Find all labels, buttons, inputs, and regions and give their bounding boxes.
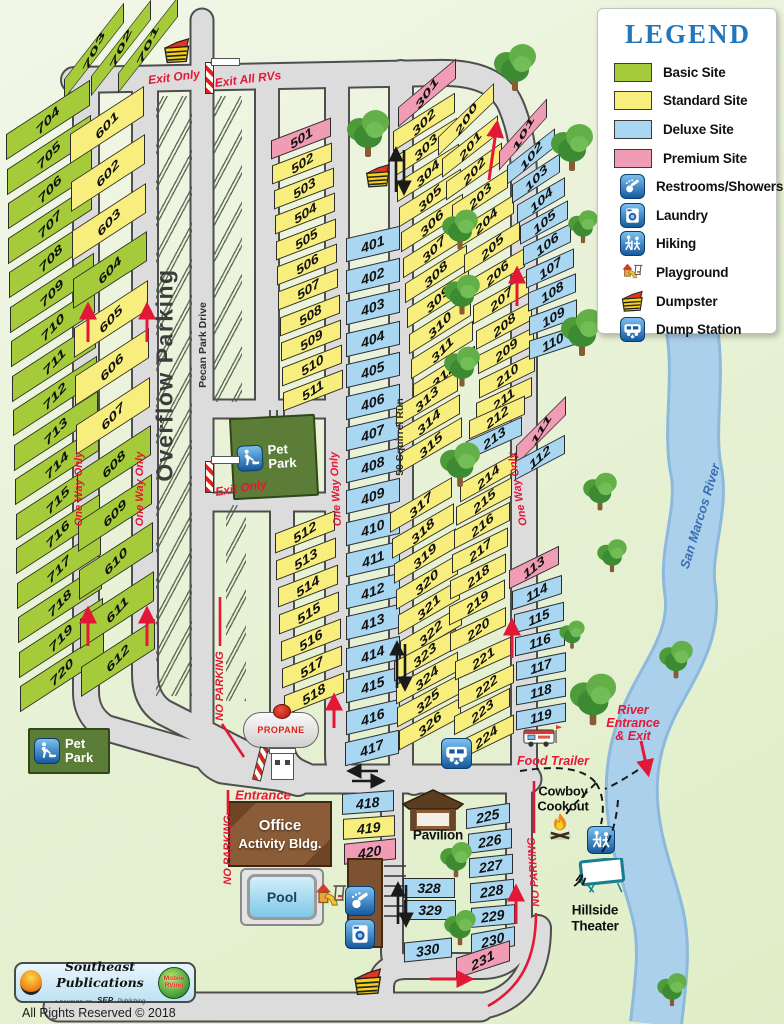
label-food-trailer: Food Trailer	[517, 754, 589, 768]
legend-label: Deluxe Site	[663, 122, 734, 137]
site-number: 403	[360, 295, 386, 319]
exit-gate-post	[205, 461, 214, 493]
site-number: 413	[360, 610, 386, 634]
label-cowboy: Cowboy	[538, 784, 587, 799]
legend-row-dump-station: Dump Station	[614, 315, 776, 344]
office-label: Office	[230, 817, 330, 834]
legend-row-playground: Playground	[614, 258, 776, 287]
exit-gate-post	[205, 62, 214, 94]
site-number: 417	[359, 736, 385, 760]
site-number: 226	[478, 831, 503, 852]
site-number: 418	[356, 793, 380, 812]
dumpster-icon	[620, 289, 645, 314]
label-one-way-only: One Way Only	[134, 452, 146, 526]
dog-walk-icon	[236, 445, 263, 472]
exit-gate-arm	[211, 456, 240, 464]
legend-row-standard-site: Standard Site	[614, 87, 776, 116]
site-number: 412	[360, 579, 386, 603]
site-number: 416	[360, 705, 386, 729]
legend-label: Dump Station	[656, 322, 741, 337]
badge-text: RVing	[165, 983, 184, 990]
label-river: River	[617, 703, 648, 717]
legend-row-laundry: Laundry	[614, 201, 776, 230]
dog-walk-icon	[34, 738, 60, 764]
site-419: 419	[343, 815, 395, 840]
site-number: 229	[481, 906, 505, 925]
legend-swatch	[614, 91, 652, 110]
publisher-text: Southeast Publications A DIVISION OF SEP…	[46, 959, 154, 1007]
legend-row-premium-site: Premium Site	[614, 144, 776, 173]
site-number: 328	[417, 880, 440, 896]
label-hillside: Hillside	[572, 903, 618, 918]
legend-label: Premium Site	[663, 151, 747, 166]
legend-label: Restrooms/Showers	[656, 179, 783, 194]
pet-park-label: Pet Park	[65, 737, 101, 764]
site-number: 116	[528, 630, 552, 652]
legend-label: Basic Site	[663, 65, 726, 80]
playground-icon	[620, 262, 645, 282]
publisher-brand-suffix: Publishing	[118, 999, 146, 1005]
label-one-way-only: One Way Only	[73, 452, 85, 526]
site-number: 228	[480, 881, 504, 901]
label-entrance: Entrance	[606, 716, 660, 730]
legend-label: Dumpster	[656, 294, 717, 309]
site-number: 407	[360, 421, 386, 445]
pet-park-label: Pet Park	[267, 442, 304, 471]
label-cookout: Cookout	[537, 799, 588, 814]
overflow-parking-lane	[214, 96, 242, 402]
overflow-parking-lane	[226, 505, 246, 701]
booth-window	[275, 760, 280, 765]
legend-label: Playground	[656, 265, 728, 280]
activity-bldg-label: Activity Bldg.	[230, 836, 330, 851]
site-number: 414	[360, 642, 386, 666]
playground-icon	[312, 881, 350, 911]
site-number: 415	[360, 673, 386, 697]
legend-row-restrooms-showers: Restrooms/Showers	[614, 172, 776, 201]
label-overflow-parking: Overflow Parking	[152, 268, 179, 481]
legend-row-hiking: Hiking	[614, 230, 776, 259]
legend-label: Standard Site	[663, 93, 747, 108]
campfire-icon	[544, 810, 576, 842]
site-number: 401	[360, 232, 386, 256]
site-329: 329	[404, 900, 456, 920]
laundry-icon	[345, 919, 375, 949]
legend-rows: Basic SiteStandard SiteDeluxe SitePremiu…	[614, 58, 776, 344]
publisher-division: A DIVISION OF	[55, 999, 93, 1004]
site-number: 408	[360, 453, 386, 477]
site-number: 409	[360, 484, 386, 508]
entrance-booth	[271, 751, 294, 780]
label-50-squirrel-run: 50 Squirrel Run	[394, 398, 406, 476]
site-number: 330	[416, 940, 440, 960]
site-number: 118	[529, 680, 552, 701]
site-number: 404	[360, 327, 386, 351]
legend-swatch	[614, 149, 652, 168]
propane-label: PROPANE	[257, 725, 304, 735]
publisher-name: Southeast Publications	[56, 959, 143, 990]
legend-panel: LEGEND Basic SiteStandard SiteDeluxe Sit…	[597, 8, 777, 334]
propane-tank: PROPANE	[243, 712, 319, 748]
label-entrance: Entrance	[235, 788, 291, 803]
site-number: 406	[360, 390, 386, 414]
pet-park-lower: Pet Park	[28, 728, 110, 774]
restrooms-icon	[620, 174, 645, 199]
site-number: 411	[361, 547, 386, 571]
site-number: 419	[357, 818, 381, 837]
label-pecan-park-drive: Pecan Park Drive	[197, 302, 209, 388]
dump-station-icon	[441, 738, 472, 769]
food-trailer-icon	[521, 722, 563, 750]
campground-map: Pet Park Pet Park Office Activity Bldg. …	[0, 0, 784, 1024]
publisher-brand: SEP	[97, 996, 113, 1005]
legend-swatch	[614, 120, 652, 139]
label--exit: & Exit	[615, 729, 650, 743]
hiking-icon	[620, 231, 645, 256]
sun-logo-icon	[20, 970, 42, 995]
label-theater: Theater	[571, 919, 618, 934]
legend-label: Laundry	[656, 208, 708, 223]
office-activity-building: Office Activity Bldg.	[228, 801, 332, 867]
theater-icon	[572, 858, 628, 893]
legend-row-dumpster: Dumpster	[614, 287, 776, 316]
site-number: 329	[418, 902, 441, 918]
legend-title: LEGEND	[614, 19, 762, 50]
legend-swatch	[614, 63, 652, 82]
site-number: 402	[360, 264, 386, 288]
legend-label: Hiking	[656, 236, 696, 251]
dumpster-icon	[364, 162, 392, 190]
hiking-icon	[587, 826, 615, 854]
site-number: 410	[360, 516, 386, 540]
site-229: 229	[471, 904, 515, 928]
mobile-rving-badge: Mobile RVing	[158, 967, 190, 999]
site-number: 225	[476, 805, 501, 826]
label-no-parking: NO PARKING	[222, 815, 234, 884]
dumpster-icon	[352, 966, 384, 998]
dump-station-icon	[620, 317, 645, 342]
dumpster-icon	[162, 36, 192, 66]
site-418: 418	[342, 790, 394, 815]
pool: Pool	[247, 874, 317, 920]
label-pavilion: Pavilion	[413, 828, 463, 843]
laundry-icon	[620, 203, 645, 228]
booth-window	[285, 760, 290, 765]
publisher-logo: Southeast Publications A DIVISION OF SEP…	[14, 962, 196, 1003]
copyright-text: All Rights Reserved © 2018	[22, 1006, 176, 1020]
site-number: 227	[479, 856, 503, 876]
site-328: 328	[403, 878, 455, 898]
legend-row-deluxe-site: Deluxe Site	[614, 115, 776, 144]
label-no-parking: NO PARKING	[214, 651, 226, 720]
legend-row-basic-site: Basic Site	[614, 58, 776, 87]
site-number: 405	[360, 358, 386, 382]
site-number: 117	[529, 655, 552, 677]
exit-gate-arm	[211, 58, 240, 66]
